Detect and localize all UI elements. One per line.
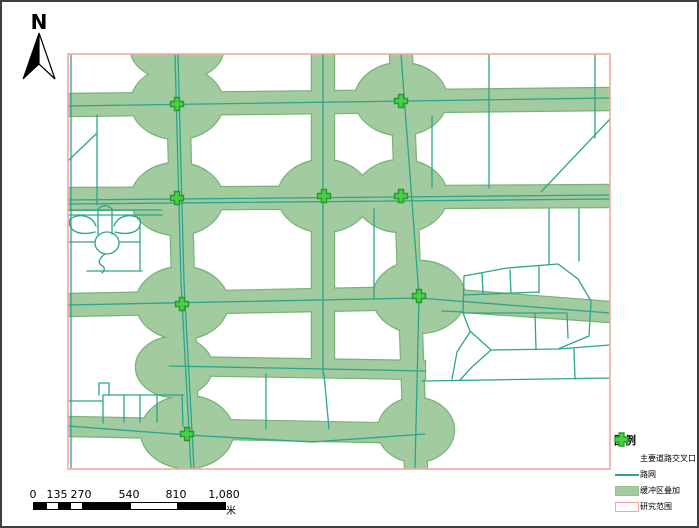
scale-tick-label: 1,080 [204,488,244,501]
legend-item-label: 缓冲区叠加 [640,485,680,496]
map-drawing: N [2,2,699,528]
legend-item-label: 路网 [640,469,656,480]
legend-item-buffer-overlay: 缓冲区叠加 [614,485,699,496]
legend-item-intersection: 主要道路交叉口 [614,453,699,464]
north-arrow-label: N [31,10,48,34]
scale-bar-segments [33,502,226,510]
legend-item-label: 主要道路交叉口 [640,453,696,464]
scale-tick-label: 810 [156,488,196,501]
legend-item-study-area: 研究范围 [614,501,699,512]
north-arrow-right-half [39,33,55,79]
buffer-zone-layer [68,20,610,469]
north-arrow: N [23,10,55,79]
study-area-swatch [614,502,640,512]
map-export-canvas: N 0 135 270 540 810 1,080 米 图例 主要道路交 [0,0,699,528]
legend-item-road-network: 路网 [614,469,699,480]
legend: 图例 主要道路交叉口 路网 缓冲区叠加 研究范围 [614,432,699,517]
scale-tick-label: 540 [109,488,149,501]
scale-unit-label: 米 [226,502,236,517]
road-line-swatch [614,474,640,476]
legend-item-label: 研究范围 [640,501,672,512]
scale-tick-label: 270 [61,488,101,501]
north-arrow-left-half [23,33,39,79]
buffer-fill-swatch [614,486,640,496]
intersection-markers [171,95,426,441]
